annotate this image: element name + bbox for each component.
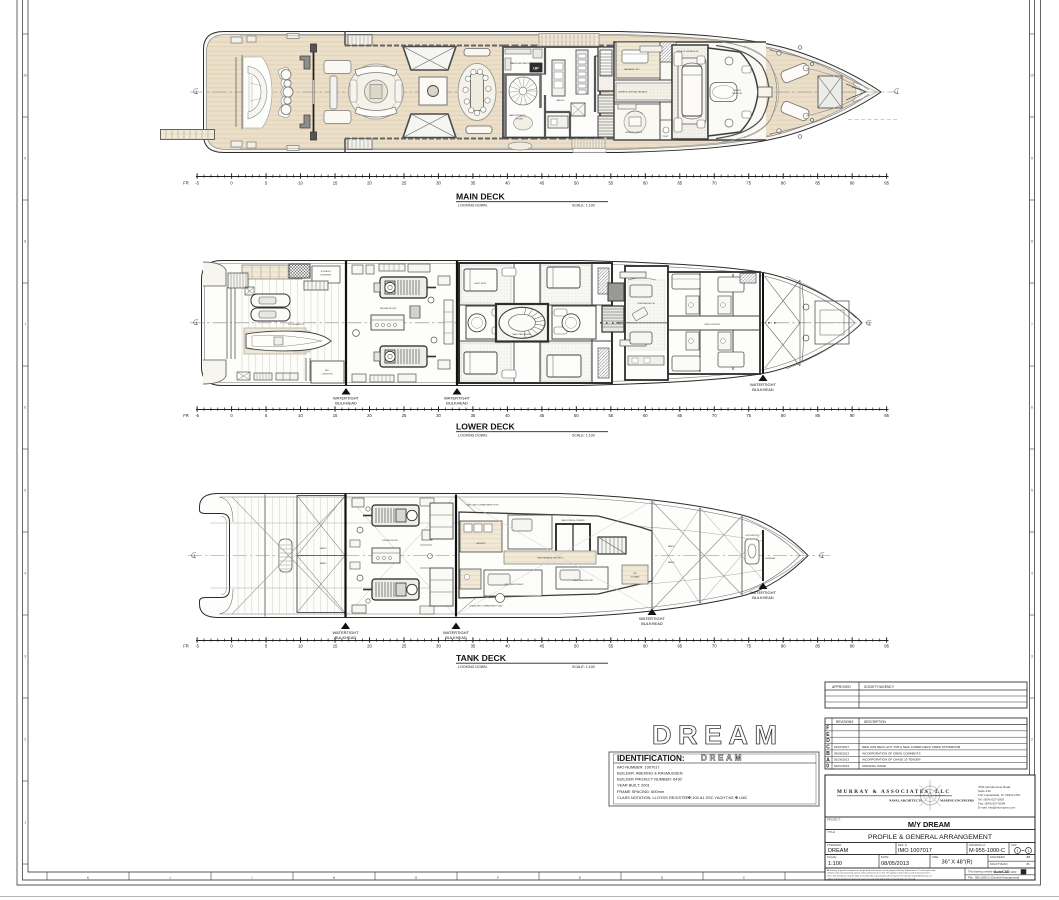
svg-text:STORAGE: STORAGE [631, 576, 641, 579]
svg-text:FOYER: FOYER [516, 119, 523, 121]
svg-text:4: 4 [24, 572, 26, 576]
svg-text:95: 95 [884, 181, 889, 186]
svg-text:AutoCAD: AutoCAD [994, 870, 1010, 874]
svg-text:I: I [252, 876, 253, 880]
svg-text:70: 70 [712, 181, 717, 186]
svg-text:65: 65 [677, 644, 682, 649]
svg-text:40: 40 [505, 181, 510, 186]
svg-text:REF. #:: REF. #: [898, 843, 907, 847]
svg-text:YEAR BUILT: 2001: YEAR BUILT: 2001 [617, 783, 650, 788]
svg-text:CREW CABIN STBD FWD: CREW CABIN STBD FWD [573, 579, 594, 582]
svg-text:60: 60 [643, 413, 648, 418]
svg-text:08/05/2013: 08/05/2013 [881, 861, 909, 867]
svg-text:75: 75 [746, 413, 751, 418]
svg-text:IDENTIFICATION:: IDENTIFICATION: [617, 754, 685, 763]
svg-text:70: 70 [712, 413, 717, 418]
svg-text:BOW THRUSTER: BOW THRUSTER [746, 535, 760, 537]
svg-text:BATHROOM: BATHROOM [732, 92, 742, 95]
svg-text:TANKS: TANKS [319, 547, 327, 550]
svg-text:9: 9 [1031, 157, 1033, 161]
svg-text:20: 20 [367, 413, 372, 418]
svg-text:IMO NUMBER: 1007017: IMO NUMBER: 1007017 [617, 764, 660, 769]
svg-text:25: 25 [402, 644, 407, 649]
svg-text:APPROVED: APPROVED [832, 685, 851, 689]
svg-text:M/Y DREAM: M/Y DREAM [908, 820, 950, 829]
svg-text:ENGINE ROOM: ENGINE ROOM [382, 540, 397, 542]
svg-text:DESCRIPTION: DESCRIPTION [864, 720, 886, 724]
svg-text:CREW MESSROOM: CREW MESSROOM [637, 303, 655, 305]
svg-text:SCALE:: SCALE: [827, 855, 837, 859]
svg-text:J: J [169, 876, 171, 880]
svg-text:solely for work contracted to: solely for work contracted to by express… [827, 872, 930, 875]
svg-text:BUILDER: ABEKING & RASMUSSEN: BUILDER: ABEKING & RASMUSSEN [617, 771, 683, 776]
svg-text:A: A [826, 757, 830, 763]
svg-text:50: 50 [574, 644, 579, 649]
svg-text:UP: UP [533, 66, 539, 71]
svg-text:15: 15 [333, 644, 338, 649]
svg-text:JET LAZARETTE: JET LAZARETTE [288, 323, 304, 326]
svg-text:02/07/2013: 02/07/2013 [834, 764, 849, 768]
svg-text:INCORPORATION OF CHASE 25 TEND: INCORPORATION OF CHASE 25 TENDER [862, 758, 921, 762]
svg-text:G: G [415, 876, 418, 880]
svg-text:SIZE:: SIZE: [932, 855, 939, 859]
svg-text:20: 20 [367, 644, 372, 649]
svg-text:GALLEY: GALLEY [556, 99, 565, 102]
svg-text:90: 90 [850, 181, 855, 186]
svg-text:DRAWING #:: DRAWING #: [969, 843, 986, 847]
svg-text:20: 20 [367, 181, 372, 186]
svg-text:File:: File: [968, 876, 974, 880]
svg-text:2000: 2000 [1011, 870, 1017, 874]
svg-text:LOOKING DOWN.: LOOKING DOWN. [458, 204, 488, 208]
svg-text:EQUIPMENT: EQUIPMENT [321, 275, 333, 277]
svg-text:SHT:: SHT: [1011, 843, 1017, 847]
svg-text:BULKHEAD: BULKHEAD [752, 387, 774, 392]
svg-text:FR: FR [183, 181, 189, 186]
svg-text:CREW CORRIDOR: CREW CORRIDOR [704, 324, 720, 326]
svg-text:DREAM: DREAM [701, 754, 744, 763]
svg-text:65: 65 [677, 413, 682, 418]
svg-text:SCALE: 1:100: SCALE: 1:100 [572, 665, 595, 669]
svg-text:6: 6 [1031, 406, 1033, 410]
svg-text:subject to detail development: subject to detail development during the… [827, 878, 916, 881]
svg-text:7: 7 [24, 323, 26, 327]
svg-text:85: 85 [815, 644, 820, 649]
svg-text:10: 10 [298, 413, 303, 418]
svg-text:MURRAY & ASSOCIATES, LLC: MURRAY & ASSOCIATES, LLC [837, 789, 951, 795]
svg-text:0: 0 [826, 764, 829, 770]
svg-text:NEW SUN DECK HOT TUB & NEW LOW: NEW SUN DECK HOT TUB & NEW LOWER DECK CR… [862, 745, 961, 749]
svg-text:8: 8 [24, 240, 26, 244]
svg-text:-5: -5 [195, 644, 199, 649]
svg-text:-5: -5 [195, 413, 199, 418]
svg-text:90: 90 [850, 413, 855, 418]
svg-text:-5: -5 [195, 181, 199, 186]
svg-text:TANKS: TANKS [668, 545, 675, 548]
svg-text:LOOKING DOWN.: LOOKING DOWN. [458, 665, 488, 669]
svg-text:2: 2 [1031, 738, 1033, 742]
svg-text:03/07/2017: 03/07/2017 [834, 745, 849, 749]
svg-text:FR: FR [183, 413, 189, 418]
svg-text:45: 45 [540, 644, 545, 649]
svg-text:TANKS: TANKS [319, 562, 327, 565]
svg-text:955-1000-C (General Arrangemen: 955-1000-C (General Arrangement) [975, 876, 1019, 880]
svg-text:HYDRAULIC: HYDRAULIC [321, 270, 332, 273]
svg-text:02/26/2013: 02/26/2013 [834, 758, 849, 762]
svg-text:75: 75 [746, 181, 751, 186]
svg-text:ENGINEER:: ENGINEER: [990, 855, 1006, 859]
svg-text:BULKHEAD: BULKHEAD [752, 595, 774, 600]
svg-text:WALK-IN FRIDGE / FREEZER: WALK-IN FRIDGE / FREEZER [561, 519, 585, 522]
svg-text:40: 40 [505, 644, 510, 649]
svg-text:B: B [826, 751, 830, 757]
svg-text:BULKHEAD: BULKHEAD [335, 401, 357, 406]
svg-text:80: 80 [781, 413, 786, 418]
svg-text:TANK DECK: TANK DECK [456, 653, 507, 663]
svg-text:5: 5 [1031, 489, 1033, 493]
svg-text:MAIN STAIR LANDING: MAIN STAIR LANDING [513, 333, 532, 336]
svg-text:09/05/2013: 09/05/2013 [834, 751, 849, 755]
svg-text:BULKHEAD: BULKHEAD [641, 621, 663, 626]
svg-text:10: 10 [298, 181, 303, 186]
svg-text:INCORPORATION OF CREW COMMENTS: INCORPORATION OF CREW COMMENTS [862, 751, 920, 755]
svg-text:OWNER'S OFFICE: OWNER'S OFFICE [625, 132, 643, 134]
svg-text:35: 35 [471, 181, 476, 186]
svg-text:DREAM: DREAM [828, 848, 849, 854]
svg-text:This drawing created in: This drawing created in [968, 870, 995, 874]
svg-text:OWNER'S CENTRAL PASSAGE: OWNER'S CENTRAL PASSAGE [618, 91, 648, 94]
svg-text:1: 1 [24, 821, 26, 825]
svg-text:25: 25 [402, 181, 407, 186]
svg-text:9: 9 [24, 157, 26, 161]
svg-text:STABILIZER COMPARTMENT PORT: STABILIZER COMPARTMENT PORT [465, 504, 499, 507]
svg-text:70: 70 [712, 644, 717, 649]
svg-text:E-mail: info@murrayna.com: E-mail: info@murrayna.com [978, 806, 1016, 810]
svg-text:FORWARD:: FORWARD: [827, 843, 842, 847]
svg-text:85: 85 [815, 181, 820, 186]
svg-text:FR: FR [183, 644, 189, 649]
svg-text:45: 45 [540, 413, 545, 418]
svg-text:others. Any infringement may: others. Any infringement may be liable t… [827, 875, 932, 878]
svg-text:4: 4 [1031, 572, 1033, 576]
svg-text:D: D [826, 738, 830, 744]
svg-text:40: 40 [505, 413, 510, 418]
svg-text:MAIN DECK: MAIN DECK [456, 192, 505, 202]
svg-text:50: 50 [574, 181, 579, 186]
svg-text:25: 25 [402, 413, 407, 418]
svg-text:CREW PASSAGE TANK DECK: CREW PASSAGE TANK DECK [537, 557, 564, 560]
svg-text:30: 30 [436, 181, 441, 186]
svg-text:SCALE: 1:100: SCALE: 1:100 [572, 204, 595, 208]
svg-text:75: 75 [746, 644, 751, 649]
svg-text:TOILET: TOILET [662, 136, 669, 138]
svg-text:10: 10 [1030, 74, 1034, 78]
svg-text:1:100: 1:100 [828, 861, 842, 867]
svg-text:35: 35 [471, 644, 476, 649]
svg-text:OWNER'S: OWNER'S [733, 90, 742, 92]
svg-text:LAUNDRY: LAUNDRY [476, 542, 486, 545]
svg-text:MAIN ENTRANCE: MAIN ENTRANCE [509, 114, 526, 117]
svg-text:60: 60 [643, 181, 648, 186]
svg-text:6: 6 [24, 406, 26, 410]
svg-text:10: 10 [298, 644, 303, 649]
svg-text:BULKHEAD: BULKHEAD [335, 635, 357, 640]
svg-text:IMO 1007017: IMO 1007017 [898, 848, 932, 854]
svg-text:50: 50 [574, 413, 579, 418]
svg-text:SOCIETY/AGENCY: SOCIETY/AGENCY [864, 685, 895, 689]
svg-text:80: 80 [781, 181, 786, 186]
svg-text:45: 45 [540, 181, 545, 186]
svg-text:7: 7 [1031, 323, 1033, 327]
svg-text:F: F [826, 726, 829, 732]
svg-text:PROFILE & GENERAL ARRANGEMENT: PROFILE & GENERAL ARRANGEMENT [868, 834, 992, 841]
svg-text:M-955-1000-C: M-955-1000-C [969, 848, 1005, 854]
svg-text:55: 55 [608, 413, 613, 418]
svg-text:WARDROBE PANTRY: WARDROBE PANTRY [510, 62, 531, 65]
svg-text:AIR: AIR [325, 369, 329, 372]
svg-text:CLASS NOTATION: LLOYDS: CLASS NOTATION: LLOYDS REGISTER [617, 795, 689, 800]
svg-text:5: 5 [24, 489, 26, 493]
svg-text:ORIGINAL ISSUE: ORIGINAL ISSUE [862, 764, 886, 768]
svg-text:3: 3 [24, 655, 26, 659]
svg-text:95: 95 [884, 644, 889, 649]
svg-text:95: 95 [884, 413, 889, 418]
svg-text:BUILDER PROJECT NUMBER: 6430: BUILDER PROJECT NUMBER: 6430 [617, 777, 683, 782]
svg-text:MASSAGE / WC: MASSAGE / WC [624, 68, 640, 71]
svg-text:DATE:: DATE: [881, 855, 889, 859]
svg-text:All drawings of general arrang: All drawings of general arrangements, de… [827, 869, 935, 872]
svg-text:PROJECT:: PROJECT: [827, 818, 841, 822]
svg-text:FOREPEAK: FOREPEAK [765, 557, 776, 560]
svg-text:80: 80 [781, 644, 786, 649]
svg-text:TANKS: TANKS [668, 561, 675, 564]
svg-text:FRAME SPACING: 600mm: FRAME SPACING: 600mm [617, 789, 664, 794]
svg-text:36" X 48"(R): 36" X 48"(R) [941, 860, 972, 866]
svg-text:NAVAL ARCHITECTS: NAVAL ARCHITECTS [889, 798, 922, 802]
svg-text:JM: JM [1026, 855, 1031, 859]
svg-text:65: 65 [677, 181, 682, 186]
svg-text:15: 15 [333, 413, 338, 418]
svg-text:✠ 100 A1 SSC YACHT 6G ✠ LMC: ✠ 100 A1 SSC YACHT 6G ✠ LMC [688, 795, 747, 800]
svg-text:LOWER DECK: LOWER DECK [456, 422, 516, 432]
svg-text:30: 30 [436, 644, 441, 649]
svg-text:DREAM: DREAM [652, 720, 784, 750]
svg-text:10: 10 [23, 74, 27, 78]
svg-text:BULKHEAD: BULKHEAD [446, 401, 468, 406]
svg-text:8: 8 [1031, 240, 1033, 244]
svg-text:SCALE: 1:100: SCALE: 1:100 [572, 434, 595, 438]
svg-text:3: 3 [1031, 655, 1033, 659]
svg-text:55: 55 [608, 181, 613, 186]
svg-text:85: 85 [815, 413, 820, 418]
svg-text:35: 35 [471, 413, 476, 418]
svg-text:DRAFTSMAN:: DRAFTSMAN: [990, 862, 1008, 866]
svg-text:ENGINE ROOM: ENGINE ROOM [380, 308, 396, 310]
svg-text:1: 1 [1017, 849, 1019, 853]
svg-text:TITLE:: TITLE: [827, 830, 836, 834]
svg-text:LOOKING DOWN.: LOOKING DOWN. [458, 434, 488, 438]
svg-text:30: 30 [436, 413, 441, 418]
svg-text:BULKHEAD: BULKHEAD [445, 635, 467, 640]
svg-text:C: C [826, 745, 830, 751]
svg-text:MARINE ENGINEERS: MARINE ENGINEERS [940, 798, 974, 802]
svg-text:CONDITION: CONDITION [321, 374, 333, 376]
svg-text:2: 2 [24, 738, 26, 742]
svg-text:15: 15 [333, 181, 338, 186]
svg-text:STABILIZER COMPARTMENT STBD: STABILIZER COMPARTMENT STBD [469, 605, 503, 608]
svg-text:60: 60 [643, 644, 648, 649]
svg-text:GUEST SUITE: GUEST SUITE [474, 283, 487, 285]
svg-text:90: 90 [850, 644, 855, 649]
svg-text:REVISIONS: REVISIONS [836, 720, 853, 724]
svg-text:JS: JS [1026, 862, 1030, 866]
svg-text:F: F [497, 876, 499, 880]
svg-text:1: 1 [1028, 849, 1030, 853]
svg-text:55: 55 [608, 644, 613, 649]
